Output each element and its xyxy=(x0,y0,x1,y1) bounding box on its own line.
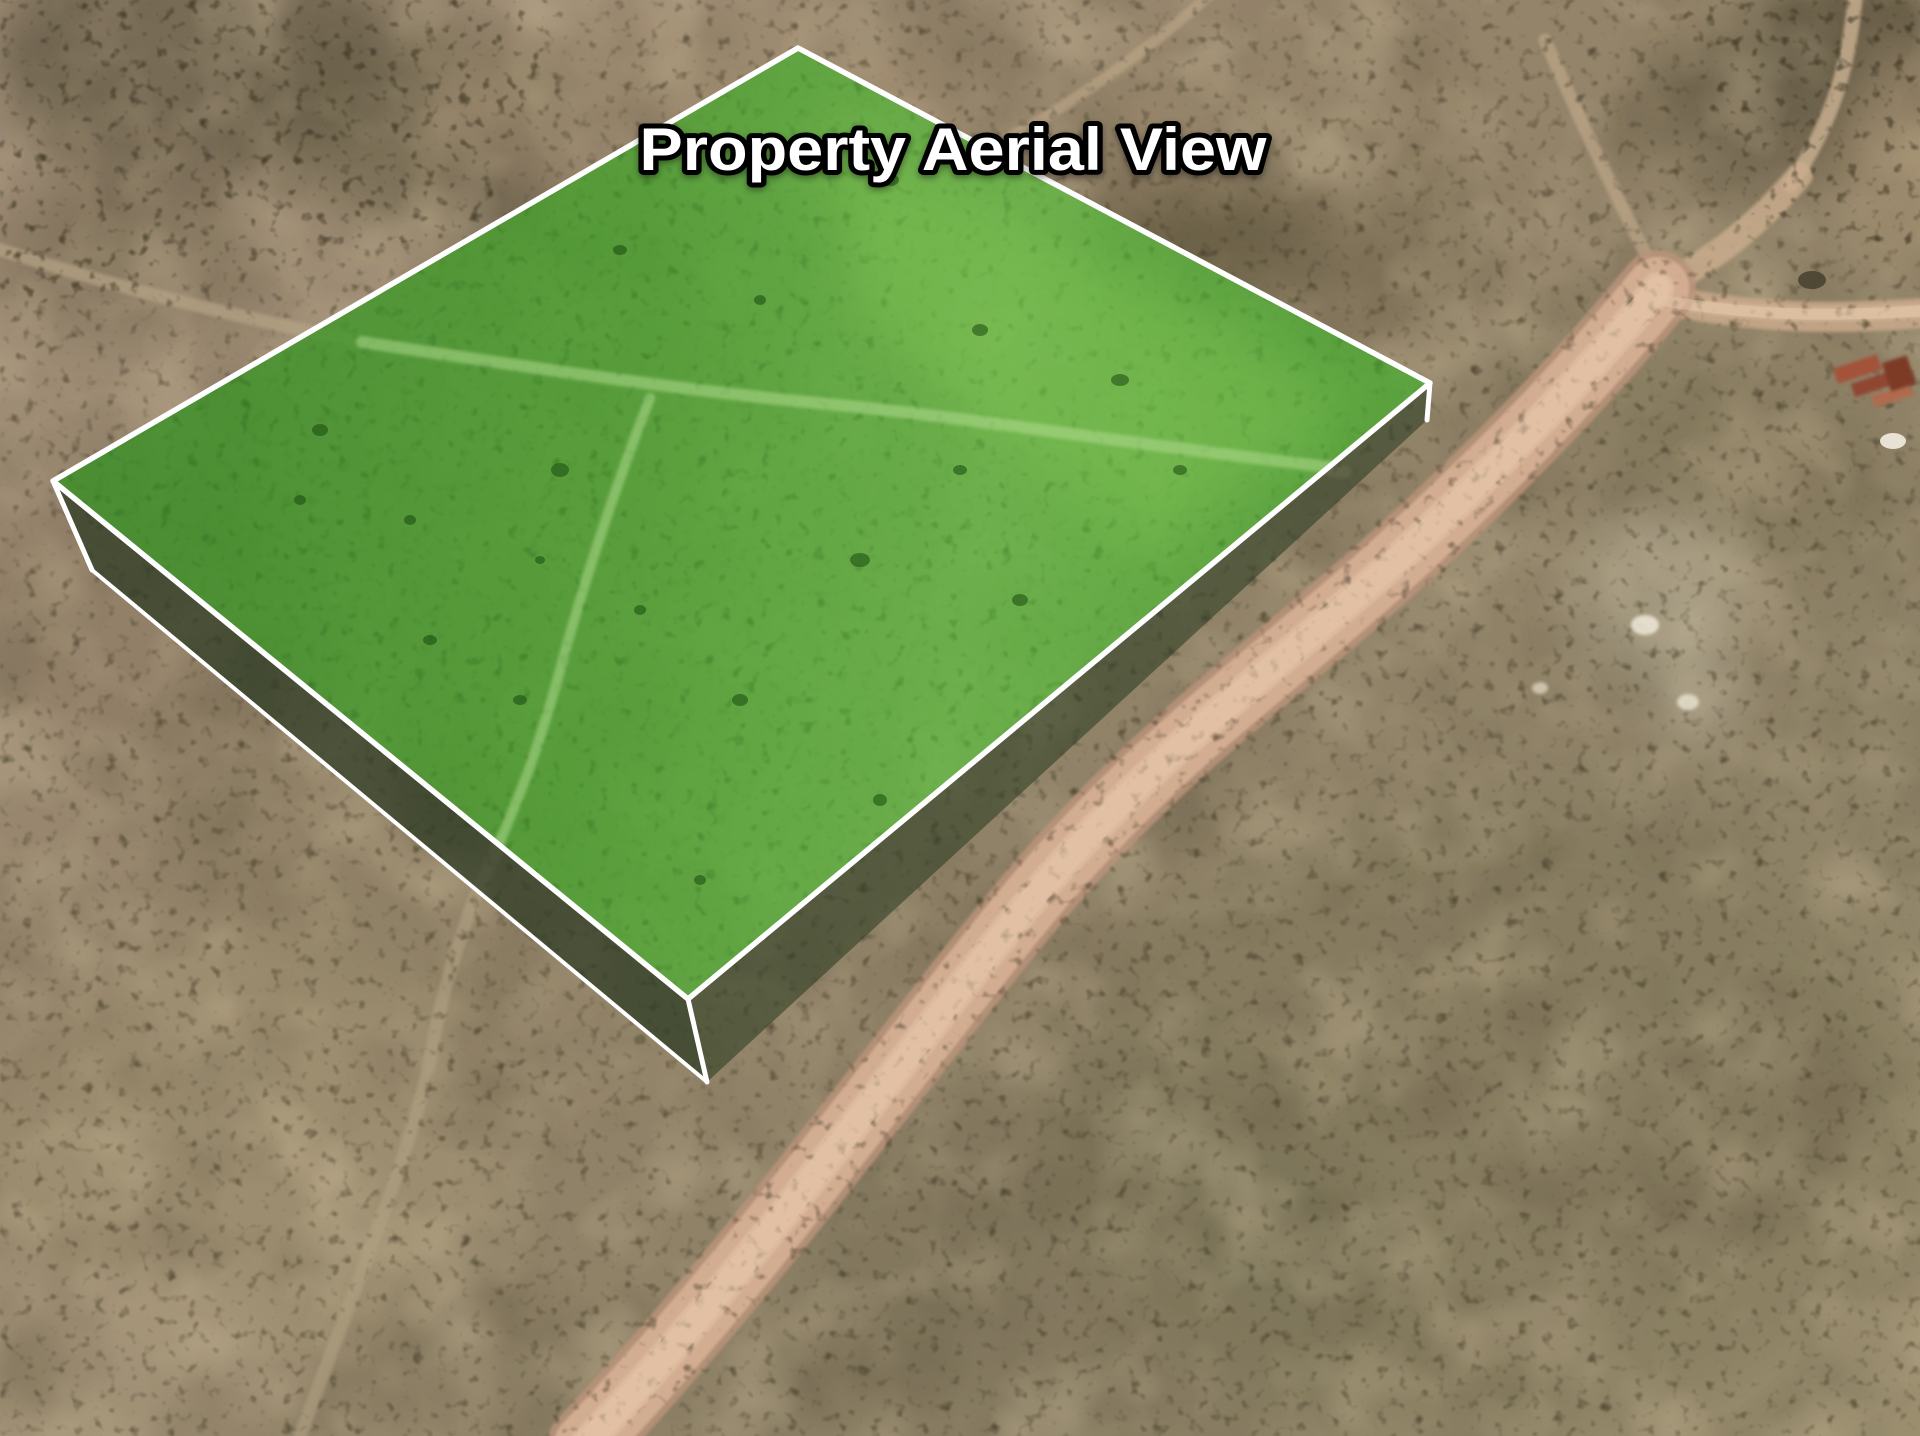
dark-spot xyxy=(1798,271,1826,289)
map-title: Property Aerial View xyxy=(640,116,1267,183)
aerial-view-screenshot: Property Aerial View xyxy=(0,0,1920,1436)
parcel-corner-edge-right xyxy=(1427,383,1430,420)
white-shed xyxy=(1880,433,1906,449)
satellite-map: Property Aerial View xyxy=(0,0,1920,1436)
